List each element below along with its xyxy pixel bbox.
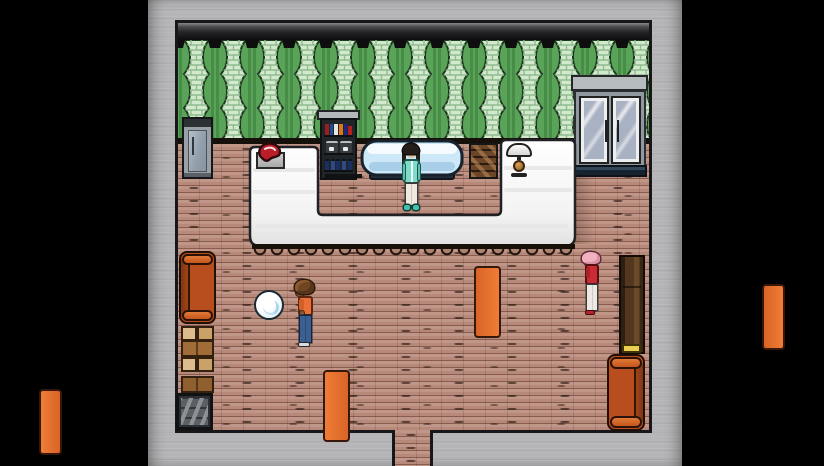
gray-slat-crate[interactable] — [176, 393, 213, 430]
refrigerator-top — [184, 119, 211, 127]
white-orb[interactable] — [254, 290, 284, 320]
cardboard-box — [197, 357, 214, 372]
cardboard-box-stack-1[interactable] — [181, 326, 214, 357]
cardboard-box — [181, 357, 197, 372]
sleeve — [299, 299, 304, 310]
scale-base — [511, 173, 527, 177]
cardboard-box — [181, 376, 214, 393]
jacket-zip — [411, 161, 413, 182]
couch-left[interactable] — [179, 251, 216, 324]
couch-cushion — [474, 266, 501, 338]
book — [330, 124, 334, 135]
game-screen — [0, 0, 824, 466]
counter-scallop-trim — [252, 244, 575, 257]
cardboard-box — [197, 326, 214, 341]
character-shopkeeper[interactable] — [399, 144, 424, 212]
couch-armrest — [182, 254, 212, 266]
wall-top-trim — [178, 23, 649, 40]
character-orange-shirt[interactable] — [293, 280, 320, 352]
hair — [403, 144, 419, 154]
meat-on-tray[interactable] — [255, 140, 285, 172]
wardrobe[interactable] — [619, 255, 645, 354]
couch-armrest — [610, 357, 641, 369]
refrigerator[interactable] — [182, 117, 213, 179]
book — [334, 124, 338, 135]
scale-dome — [506, 143, 532, 157]
hair — [582, 252, 600, 264]
yellow-item-at-wardrobe-base[interactable] — [622, 344, 641, 353]
couch-cushion — [39, 389, 62, 455]
couch-right[interactable] — [607, 354, 645, 431]
couch-cushion — [762, 284, 785, 350]
refrigerator-door — [188, 130, 207, 172]
cardboard-box — [181, 340, 214, 357]
shoe — [404, 205, 410, 210]
door-handle — [605, 120, 607, 142]
cardboard-box — [181, 326, 197, 341]
double-glass-door[interactable] — [568, 75, 650, 177]
jeans-seam — [305, 316, 306, 342]
door-handle — [617, 120, 619, 142]
shoe — [413, 205, 419, 210]
refrigerator-handle — [192, 137, 194, 155]
shoe — [298, 342, 310, 347]
sleeve — [586, 267, 590, 278]
door-frame — [574, 90, 646, 168]
couch-armrest — [182, 310, 212, 322]
shoe — [585, 310, 595, 315]
door-threshold — [574, 165, 647, 177]
pants-seam — [411, 184, 412, 205]
book-row — [324, 124, 353, 137]
south-exit-doorway[interactable] — [392, 430, 433, 466]
door-glass — [616, 101, 636, 159]
pants-seam — [592, 285, 593, 310]
character-pink-hair[interactable] — [581, 252, 604, 318]
refrigerator-plinth — [184, 173, 211, 177]
door-glass — [584, 101, 604, 159]
hand — [300, 311, 304, 315]
couch-cushion — [323, 370, 350, 442]
door-lintel — [571, 75, 648, 91]
arm — [417, 163, 421, 181]
arm — [402, 163, 406, 181]
couch-armrest — [610, 416, 641, 428]
counter-scale[interactable] — [504, 143, 534, 179]
book — [325, 124, 329, 135]
scale-weight — [513, 160, 525, 172]
book — [339, 124, 343, 135]
door-panel-right — [611, 96, 641, 164]
cardboard-box-stack-2[interactable] — [181, 357, 214, 393]
book — [344, 124, 348, 135]
book — [348, 126, 352, 135]
hair — [295, 280, 314, 294]
